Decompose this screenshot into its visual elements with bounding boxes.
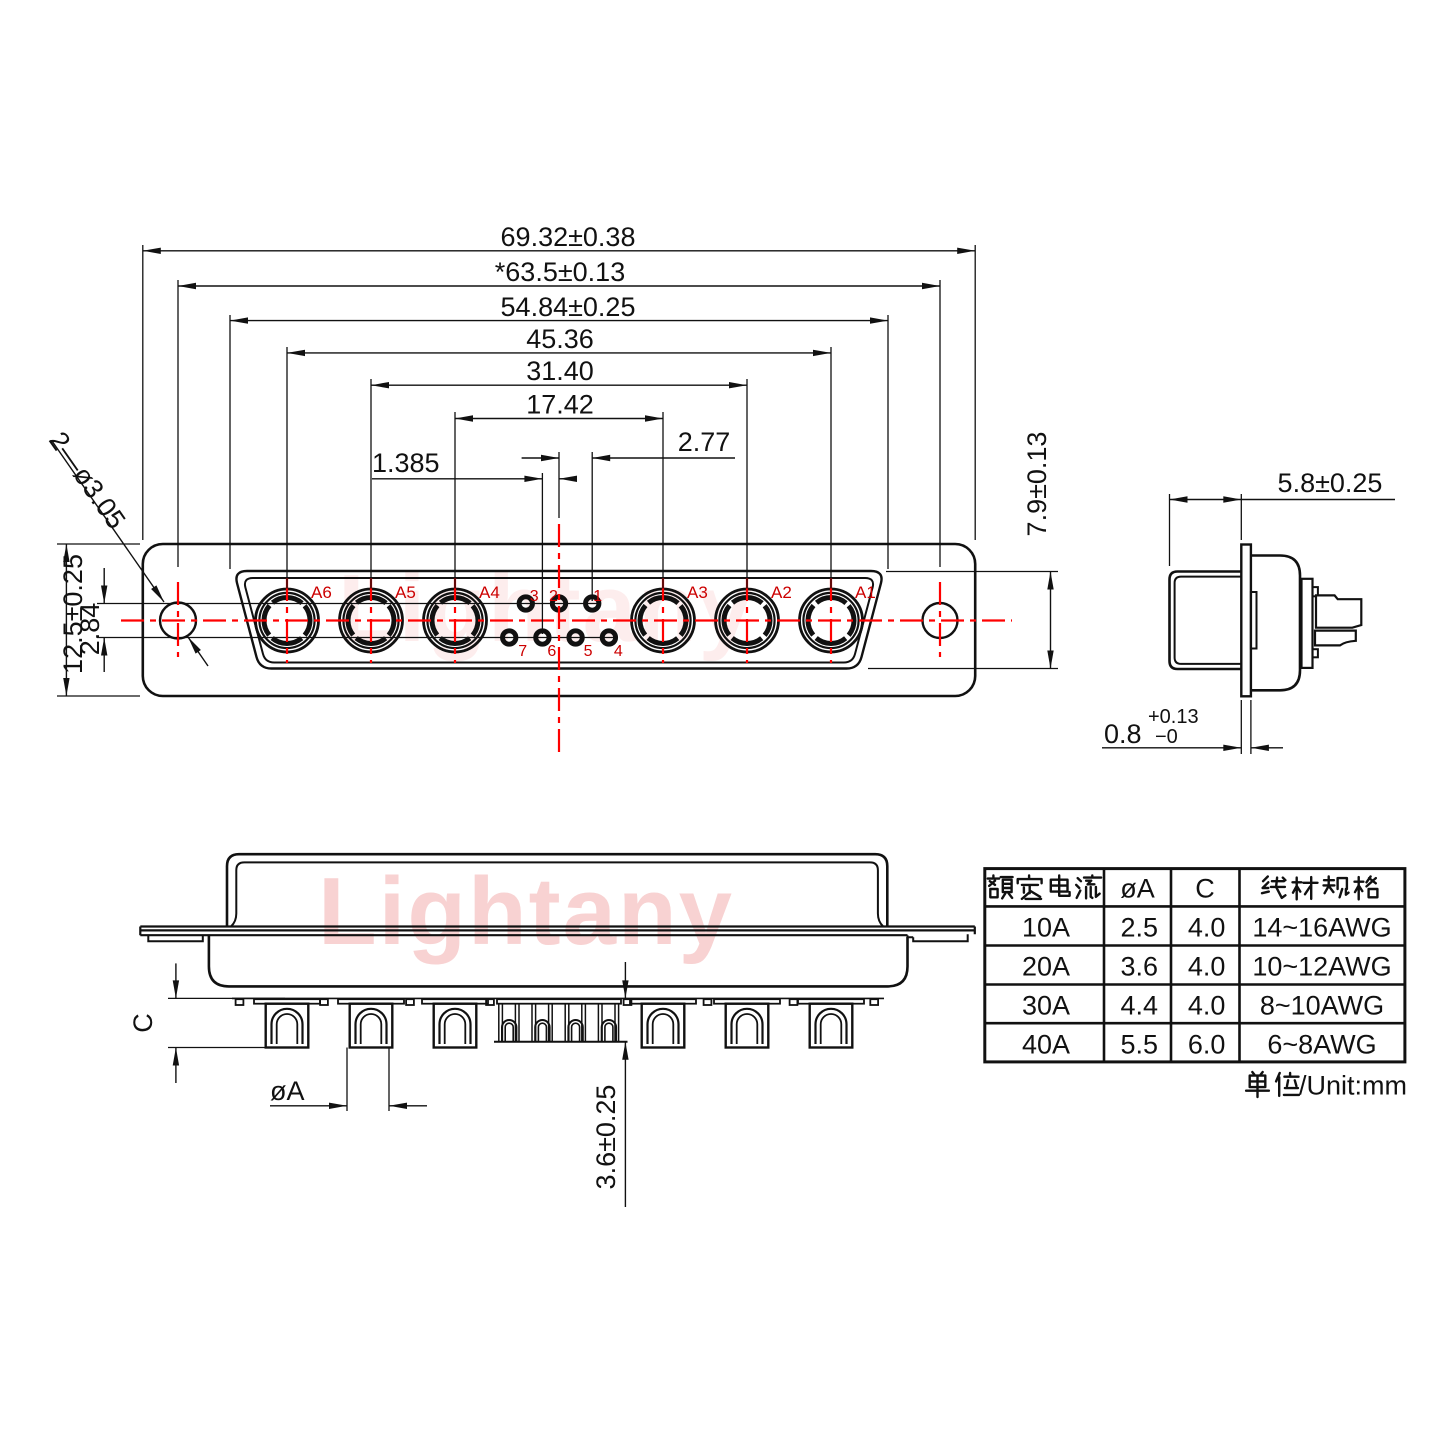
svg-text:Lightany: Lightany bbox=[318, 858, 734, 965]
svg-text:4.4: 4.4 bbox=[1121, 991, 1159, 1021]
svg-text:54.84±0.25: 54.84±0.25 bbox=[501, 292, 636, 322]
svg-text:1.385: 1.385 bbox=[372, 448, 440, 478]
svg-text:14~16AWG: 14~16AWG bbox=[1252, 913, 1391, 943]
svg-text:5.5: 5.5 bbox=[1121, 1029, 1159, 1059]
svg-text:2.84: 2.84 bbox=[75, 603, 105, 656]
svg-text:2—ø3.05: 2—ø3.05 bbox=[43, 426, 131, 534]
svg-text:øA: øA bbox=[1120, 874, 1155, 904]
svg-text:/Unit:mm: /Unit:mm bbox=[1299, 1071, 1407, 1101]
svg-text:3: 3 bbox=[530, 588, 539, 605]
svg-text:2.5: 2.5 bbox=[1121, 913, 1159, 943]
svg-text:3.6: 3.6 bbox=[1121, 952, 1159, 982]
svg-text:C: C bbox=[128, 1013, 158, 1033]
svg-text:A4: A4 bbox=[479, 583, 500, 602]
svg-text:A1: A1 bbox=[855, 583, 876, 602]
svg-text:6~8AWG: 6~8AWG bbox=[1267, 1029, 1376, 1059]
svg-text:4: 4 bbox=[614, 643, 623, 660]
svg-text:31.40: 31.40 bbox=[526, 356, 594, 386]
svg-text:øA: øA bbox=[270, 1076, 305, 1106]
svg-text:2.77: 2.77 bbox=[678, 427, 731, 457]
svg-text:4.0: 4.0 bbox=[1188, 991, 1226, 1021]
svg-text:2: 2 bbox=[549, 588, 558, 605]
svg-text:10A: 10A bbox=[1022, 913, 1070, 943]
svg-text:C: C bbox=[1195, 874, 1215, 904]
svg-text:0.8: 0.8 bbox=[1104, 719, 1142, 749]
svg-text:A5: A5 bbox=[395, 583, 416, 602]
svg-text:5.8±0.25: 5.8±0.25 bbox=[1278, 468, 1383, 498]
svg-text:40A: 40A bbox=[1022, 1029, 1070, 1059]
svg-text:45.36: 45.36 bbox=[526, 324, 594, 354]
svg-text:8~10AWG: 8~10AWG bbox=[1260, 991, 1384, 1021]
svg-text:A3: A3 bbox=[687, 583, 708, 602]
svg-text:6: 6 bbox=[547, 643, 556, 660]
svg-text:3.6±0.25: 3.6±0.25 bbox=[591, 1085, 621, 1190]
svg-text:5: 5 bbox=[584, 643, 593, 660]
svg-text:4.0: 4.0 bbox=[1188, 952, 1226, 982]
svg-text:−0: −0 bbox=[1155, 726, 1178, 748]
svg-text:20A: 20A bbox=[1022, 952, 1070, 982]
svg-text:A6: A6 bbox=[311, 583, 332, 602]
svg-text:*63.5±0.13: *63.5±0.13 bbox=[495, 257, 625, 287]
svg-text:69.32±0.38: 69.32±0.38 bbox=[501, 222, 636, 252]
svg-text:17.42: 17.42 bbox=[526, 390, 594, 420]
svg-text:7.9±0.13: 7.9±0.13 bbox=[1022, 432, 1052, 537]
svg-text:30A: 30A bbox=[1022, 991, 1070, 1021]
svg-text:1: 1 bbox=[593, 588, 602, 605]
svg-text:6.0: 6.0 bbox=[1188, 1029, 1226, 1059]
svg-text:+0.13: +0.13 bbox=[1148, 706, 1199, 728]
svg-text:4.0: 4.0 bbox=[1188, 913, 1226, 943]
svg-text:7: 7 bbox=[518, 643, 527, 660]
svg-text:10~12AWG: 10~12AWG bbox=[1252, 952, 1391, 982]
svg-text:A2: A2 bbox=[771, 583, 792, 602]
